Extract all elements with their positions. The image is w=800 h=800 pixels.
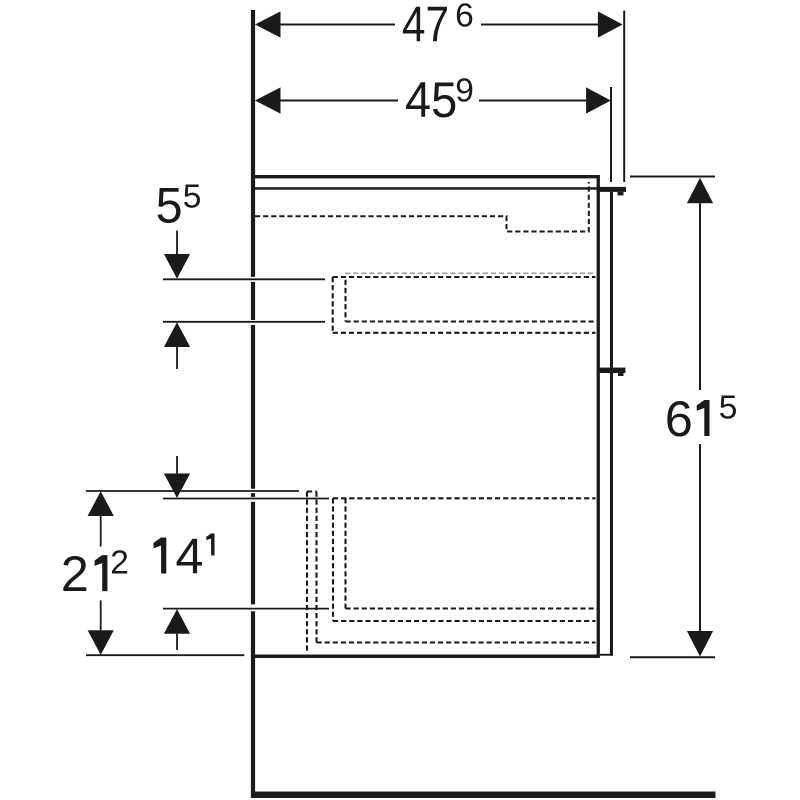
svg-text:2: 2: [61, 545, 89, 602]
svg-text:5: 5: [156, 178, 183, 234]
svg-text:6: 6: [665, 390, 693, 447]
svg-text:5: 5: [719, 390, 738, 427]
svg-text:2: 2: [110, 545, 129, 582]
svg-text:45: 45: [405, 72, 457, 128]
svg-text:5: 5: [183, 178, 202, 215]
svg-text:4: 4: [175, 528, 203, 585]
svg-text:6: 6: [455, 0, 474, 34]
svg-text:9: 9: [455, 73, 474, 110]
svg-text:47: 47: [402, 0, 449, 52]
